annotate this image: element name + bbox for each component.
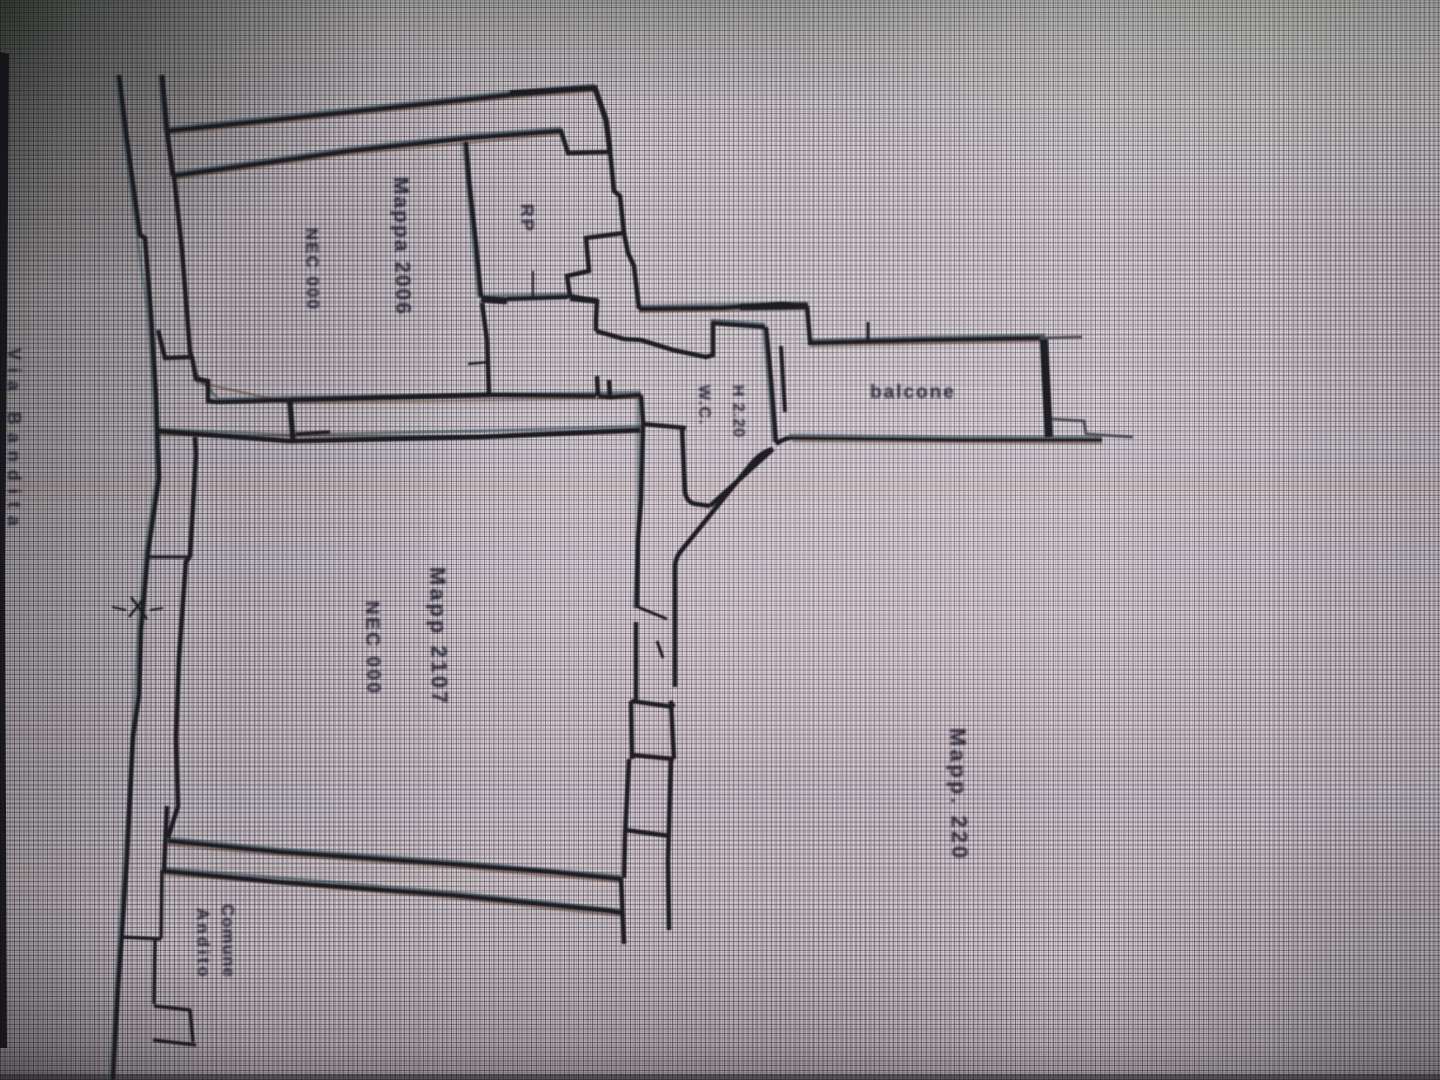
svg-text:Mapp. 220: Mapp. 220: [945, 728, 972, 862]
svg-text:NEC 000: NEC 000: [302, 228, 322, 311]
svg-text:H 2.20: H 2.20: [729, 385, 747, 438]
svg-text:balcone: balcone: [870, 382, 956, 403]
svg-text:RP: RP: [517, 204, 538, 233]
svg-text:NEC 000: NEC 000: [361, 601, 384, 696]
svg-text:Andito: Andito: [193, 908, 213, 980]
svg-text:Via Bandita: Via Bandita: [4, 348, 24, 534]
svg-text:Mapp 2107: Mapp 2107: [425, 567, 452, 707]
svg-text:W.C.: W.C.: [695, 385, 713, 426]
svg-text:Comune: Comune: [218, 904, 238, 978]
svg-text:Mappa 2006: Mappa 2006: [389, 177, 414, 316]
